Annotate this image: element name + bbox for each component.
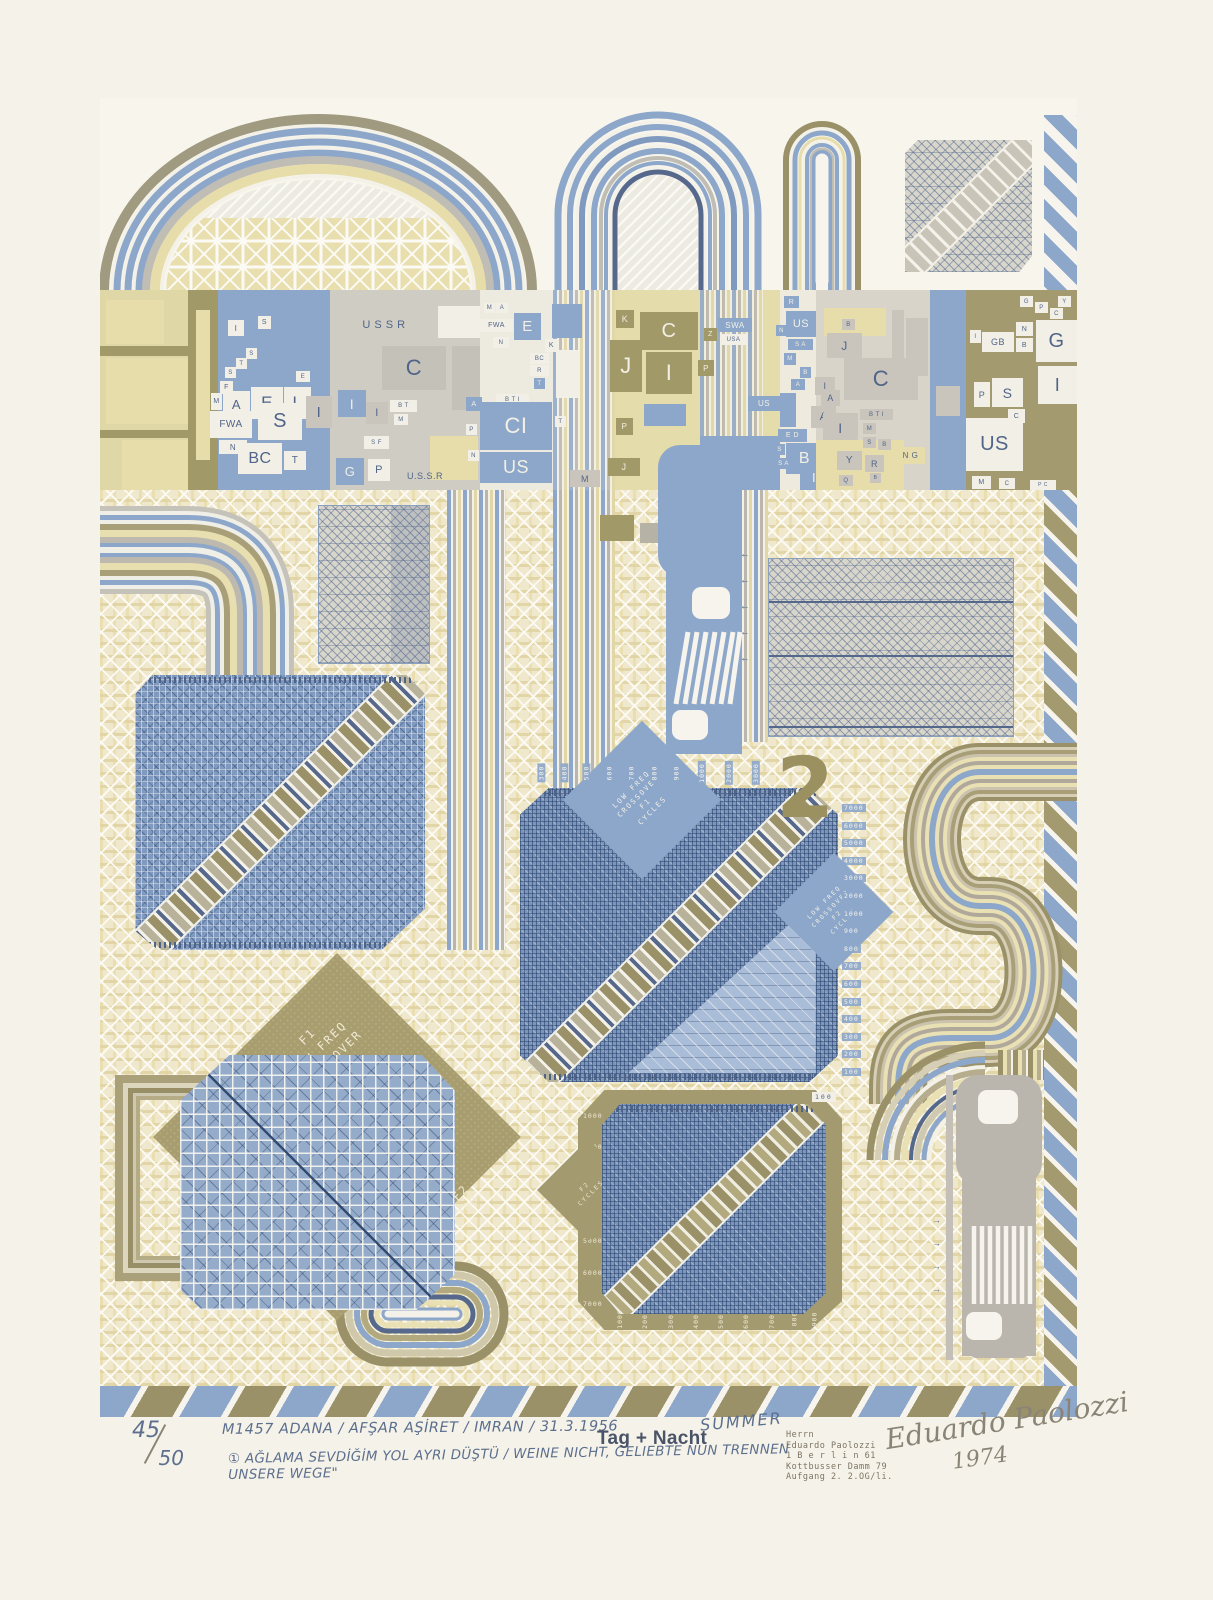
signature-year: 1974 [951, 1442, 1010, 1475]
address-line: 1 B e r l i n 61 [786, 1451, 893, 1462]
printed-title: Tag + Nacht [597, 1428, 707, 1450]
address-line: Eduardo Paolozzi [786, 1441, 893, 1452]
arrow-markers-right: → → → → [932, 1216, 941, 1294]
artwork-scan: { "palette":{"b":"#8da7ca","w":"#f2efe6"… [0, 0, 1213, 1600]
address-line: Aufgang 2. 2.OG/li. [786, 1472, 893, 1483]
caption-line-2: ① AĞLAMA SEVDİĞİM YOL AYRI DÜŞTÜ / WEINE… [228, 1441, 808, 1483]
strain-gauges [100, 98, 1077, 1417]
address-line: Herrn [786, 1430, 893, 1441]
address-line: Kottbusser Damm 79 [786, 1462, 893, 1473]
arrow-right-icon: → [932, 1216, 941, 1225]
gray-gauge [946, 1075, 1042, 1360]
edition-denominator: 50 [159, 1446, 184, 1470]
arrow-right-icon: → [932, 1239, 941, 1248]
print-area: ← ← ← ← ← ISSTSFMAELEFWASNBCTIU S S RCII… [100, 98, 1077, 1417]
typed-address-block: HerrnEduardo Paolozzi1 B e r l i n 61Kot… [786, 1430, 893, 1483]
edition-number: 45 50 [132, 1418, 184, 1470]
blue-gauge [658, 445, 742, 754]
arrow-right-icon: → [932, 1285, 941, 1294]
arrow-right-icon: → [932, 1262, 941, 1271]
